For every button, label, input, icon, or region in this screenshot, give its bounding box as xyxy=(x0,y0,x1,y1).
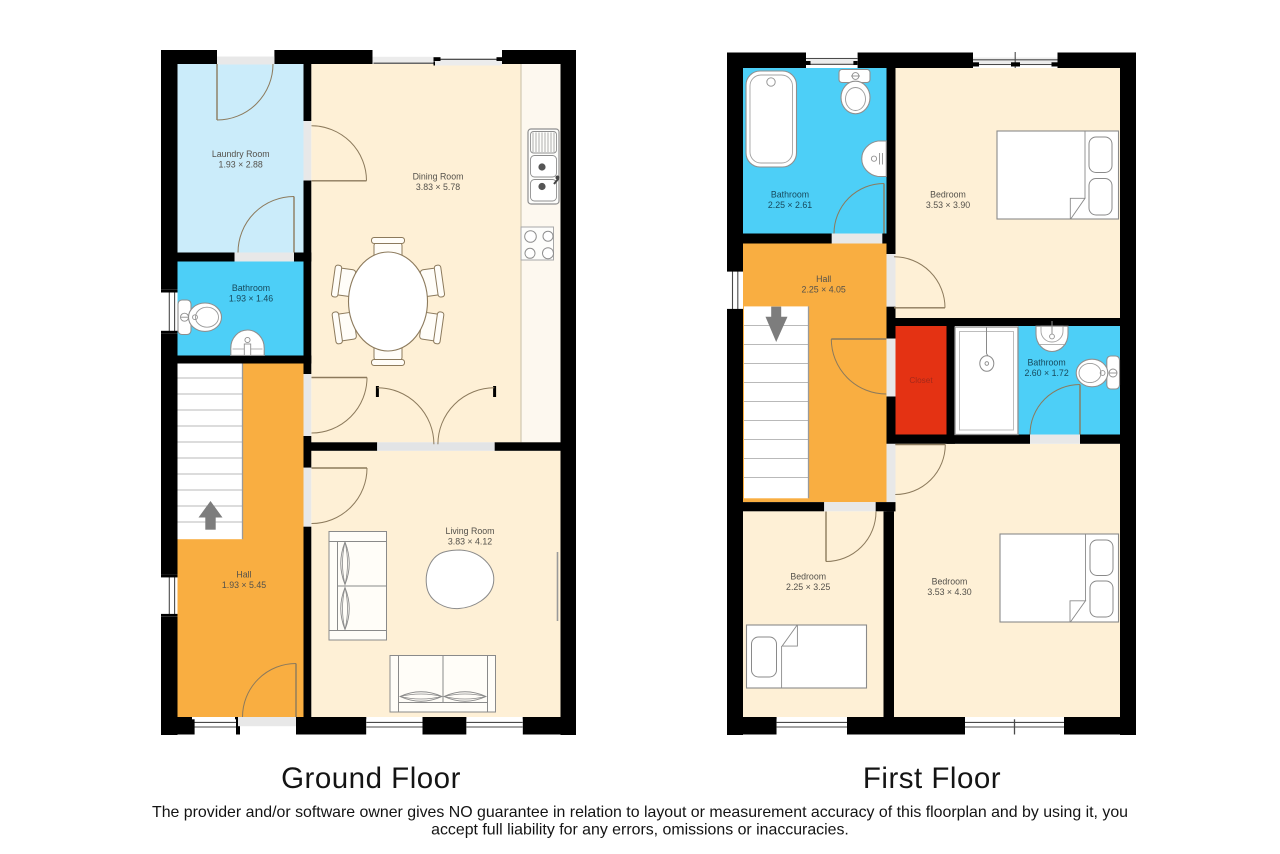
svg-text:Bathroom: Bathroom xyxy=(1028,358,1066,368)
svg-text:Ground Floor: Ground Floor xyxy=(281,762,461,795)
svg-text:3.83 × 5.78: 3.83 × 5.78 xyxy=(416,182,460,192)
svg-text:Closet: Closet xyxy=(909,376,933,385)
svg-text:Laundry Room: Laundry Room xyxy=(212,149,270,159)
svg-text:3.53 × 4.30: 3.53 × 4.30 xyxy=(927,587,971,597)
svg-text:Bedroom: Bedroom xyxy=(930,190,966,200)
svg-text:Dining Room: Dining Room xyxy=(413,172,464,182)
svg-text:2.25 × 2.61: 2.25 × 2.61 xyxy=(768,200,812,210)
svg-text:1.93 × 5.45: 1.93 × 5.45 xyxy=(222,580,266,590)
svg-text:Hall: Hall xyxy=(236,570,251,580)
svg-text:Bedroom: Bedroom xyxy=(932,577,968,587)
svg-text:Bathroom: Bathroom xyxy=(771,190,809,200)
svg-text:Living Room: Living Room xyxy=(446,526,495,536)
svg-text:First Floor: First Floor xyxy=(863,762,1001,795)
svg-text:Bathroom: Bathroom xyxy=(232,283,270,293)
svg-text:The provider and/or software o: The provider and/or software owner gives… xyxy=(152,804,1128,821)
svg-text:3.83 × 4.12: 3.83 × 4.12 xyxy=(448,537,492,547)
svg-text:Bedroom: Bedroom xyxy=(790,572,826,582)
svg-text:Hall: Hall xyxy=(816,274,831,284)
svg-text:1.93 × 2.88: 1.93 × 2.88 xyxy=(219,160,263,170)
svg-text:3.53 × 3.90: 3.53 × 3.90 xyxy=(926,200,970,210)
svg-text:2.60 × 1.72: 2.60 × 1.72 xyxy=(1024,368,1068,378)
svg-text:2.25 × 3.25: 2.25 × 3.25 xyxy=(786,582,830,592)
svg-text:2.25 × 4.05: 2.25 × 4.05 xyxy=(802,285,846,295)
svg-text:1.93 × 1.46: 1.93 × 1.46 xyxy=(229,294,273,304)
svg-text:accept full liability for any: accept full liability for any errors, om… xyxy=(431,822,849,839)
